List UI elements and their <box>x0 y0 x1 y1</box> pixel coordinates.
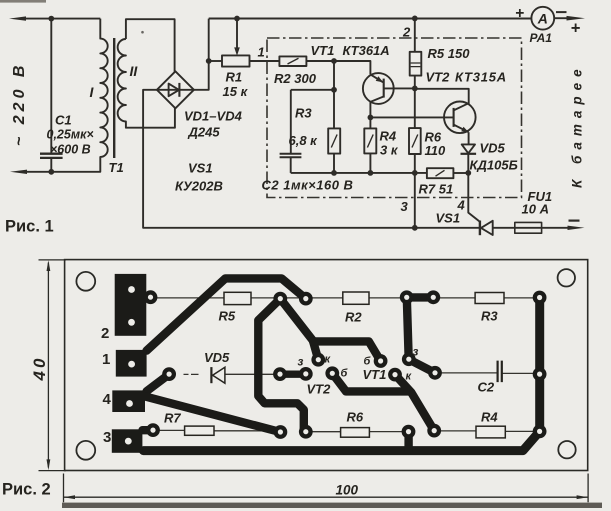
svg-text:3 к: 3 к <box>380 143 399 158</box>
svg-text:3: 3 <box>401 199 409 214</box>
svg-text:VD5: VD5 <box>480 141 506 156</box>
svg-text:КУ202В: КУ202В <box>175 179 223 194</box>
svg-text:R5: R5 <box>219 309 236 324</box>
svg-text:R3: R3 <box>481 309 498 324</box>
svg-text:40: 40 <box>30 356 49 382</box>
svg-text:R7 51: R7 51 <box>419 182 454 197</box>
svg-text:+: + <box>571 20 581 38</box>
svg-text:R1: R1 <box>226 70 243 85</box>
svg-text:Т1: Т1 <box>109 160 124 175</box>
svg-text:6,8 к: 6,8 к <box>289 133 319 148</box>
svg-text:R2: R2 <box>345 310 362 325</box>
svg-text:К батарее: К батарее <box>570 63 585 188</box>
svg-text:VD1–VD4: VD1–VD4 <box>184 109 243 124</box>
svg-text:С2 1мк×160 В: С2 1мк×160 В <box>262 178 354 193</box>
svg-text:15 к: 15 к <box>223 84 249 99</box>
svg-text:С2: С2 <box>478 380 495 395</box>
svg-text:з: з <box>413 347 419 359</box>
svg-text:КТ315А: КТ315А <box>455 70 507 85</box>
svg-text:R4: R4 <box>481 410 498 425</box>
svg-text:КД105Б: КД105Б <box>470 158 518 173</box>
svg-text:4: 4 <box>103 391 112 408</box>
svg-text:VT2: VT2 <box>426 70 451 85</box>
svg-text:С1: С1 <box>55 113 72 128</box>
svg-text:VT1: VT1 <box>363 367 387 382</box>
svg-text:КТ361А: КТ361А <box>343 43 390 58</box>
svg-text:2: 2 <box>402 25 411 40</box>
svg-text:100: 100 <box>336 483 359 498</box>
svg-text:10 А: 10 А <box>522 202 549 217</box>
svg-text:VD5: VD5 <box>204 350 230 365</box>
svg-text:VT1: VT1 <box>311 43 335 58</box>
svg-text:VT2: VT2 <box>307 382 332 397</box>
svg-text:R2 300: R2 300 <box>274 71 317 86</box>
svg-text:1: 1 <box>258 45 265 60</box>
svg-text:R3: R3 <box>295 106 312 121</box>
svg-text:VS1: VS1 <box>188 161 213 176</box>
svg-text:3: 3 <box>103 429 111 446</box>
svg-text:А: А <box>537 11 548 27</box>
svg-text:2: 2 <box>101 325 109 342</box>
svg-text:110: 110 <box>425 143 446 158</box>
svg-text:R4: R4 <box>380 129 397 144</box>
svg-text:Рис. 1: Рис. 1 <box>5 218 54 236</box>
svg-text:R7: R7 <box>164 411 181 426</box>
svg-text:0,25мк×: 0,25мк× <box>47 128 95 142</box>
svg-text:б: б <box>341 368 349 380</box>
svg-text:1: 1 <box>102 351 110 368</box>
svg-text:Рис. 2: Рис. 2 <box>2 481 51 499</box>
svg-text:VS1: VS1 <box>436 211 461 226</box>
svg-text:з: з <box>298 357 304 369</box>
svg-text:II: II <box>130 63 139 79</box>
svg-text:R5 150: R5 150 <box>428 46 471 61</box>
svg-text:б: б <box>364 356 372 368</box>
svg-text:+: + <box>515 5 524 22</box>
svg-text:Д245: Д245 <box>188 125 221 140</box>
svg-text:~ 220 В: ~ 220 В <box>11 62 28 146</box>
svg-text:×600 В: ×600 В <box>50 143 91 157</box>
svg-text:R6: R6 <box>347 410 364 425</box>
svg-text:PA1: PA1 <box>530 31 553 45</box>
